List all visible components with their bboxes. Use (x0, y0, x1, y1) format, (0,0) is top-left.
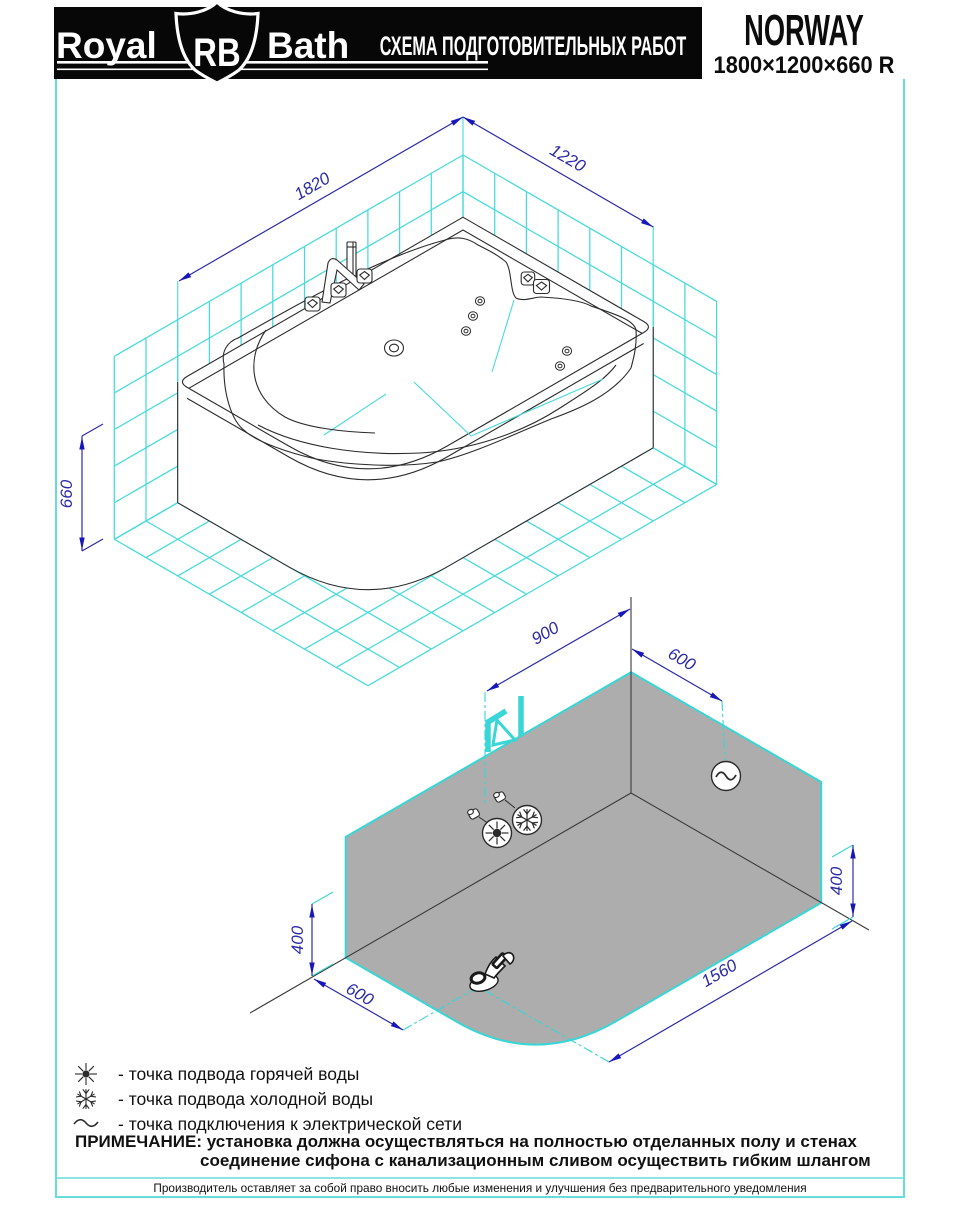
svg-text:- точка подключения к электрич: - точка подключения к электрической сети (118, 1114, 462, 1134)
svg-text:соединение сифона с канализаци: соединение сифона с канализационным слив… (200, 1151, 871, 1170)
svg-text:1800×1200×660 R: 1800×1200×660 R (714, 51, 895, 78)
svg-text:400: 400 (827, 866, 846, 895)
svg-text:660: 660 (57, 479, 76, 508)
svg-text:Bath: Bath (267, 25, 349, 66)
svg-text:- точка подвода горячей воды: - точка подвода горячей воды (118, 1064, 359, 1084)
svg-text:RB: RB (193, 30, 240, 75)
svg-text:400: 400 (288, 925, 307, 954)
svg-text:NORWAY: NORWAY (744, 5, 864, 54)
svg-text:ПРИМЕЧАНИЕ: установка должна о: ПРИМЕЧАНИЕ: установка должна осуществлят… (75, 1132, 857, 1151)
svg-text:Производитель оставляет за соб: Производитель оставляет за собой право в… (153, 1181, 806, 1195)
svg-text:Royal: Royal (56, 25, 157, 66)
svg-text:СХЕМА ПОДГОТОВИТЕЛЬНЫХ РАБОТ: СХЕМА ПОДГОТОВИТЕЛЬНЫХ РАБОТ (380, 31, 687, 61)
svg-text:- точка подвода холодной воды: - точка подвода холодной воды (118, 1089, 373, 1109)
